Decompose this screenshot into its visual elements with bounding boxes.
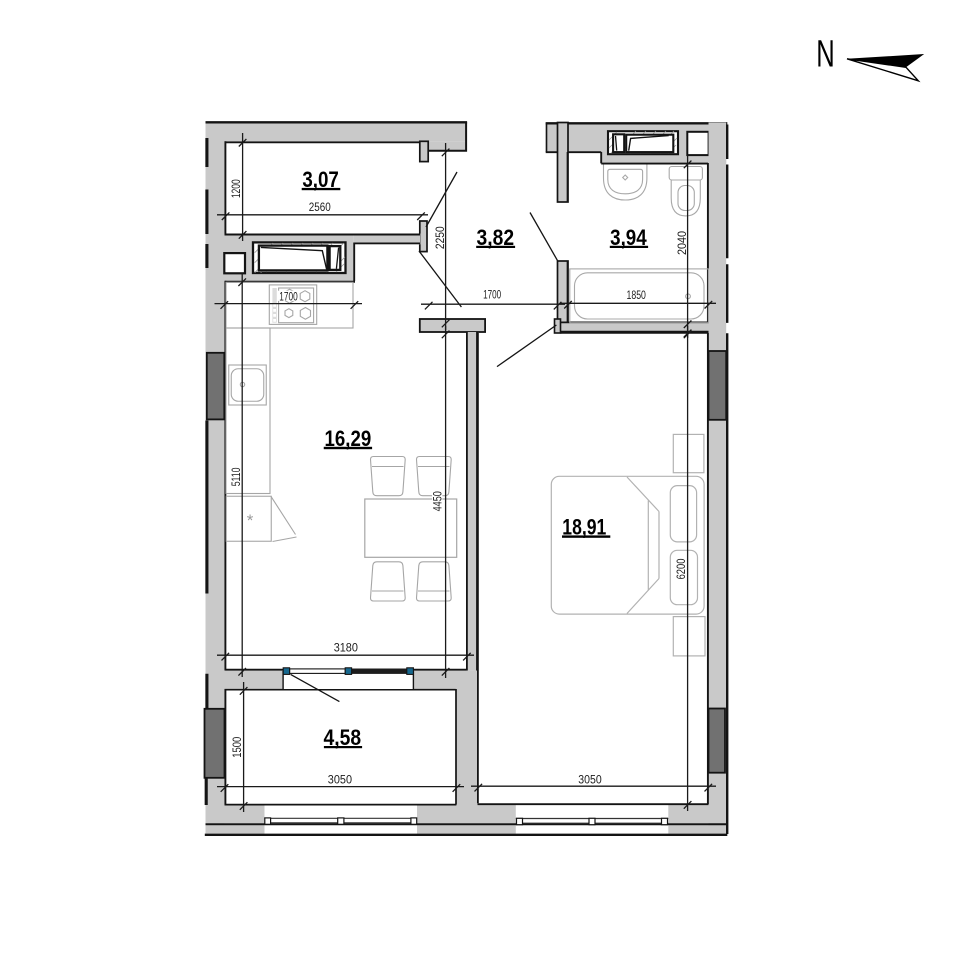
svg-text:3050: 3050 [578, 772, 602, 786]
svg-text:1700: 1700 [279, 289, 298, 303]
svg-text:1200: 1200 [229, 179, 243, 198]
svg-text:2560: 2560 [309, 200, 331, 214]
svg-text:1700: 1700 [483, 288, 501, 302]
svg-text:1850: 1850 [627, 288, 647, 302]
svg-text:2040: 2040 [675, 231, 689, 255]
svg-text:6200: 6200 [674, 558, 688, 579]
svg-text:2250: 2250 [433, 226, 447, 249]
svg-text:*: * [247, 511, 254, 530]
svg-text:4450: 4450 [431, 491, 445, 511]
svg-text:N: N [816, 33, 834, 75]
svg-text:5110: 5110 [229, 467, 243, 486]
svg-text:3180: 3180 [334, 640, 358, 654]
svg-text:3050: 3050 [328, 772, 352, 786]
svg-text:1500: 1500 [230, 737, 244, 758]
